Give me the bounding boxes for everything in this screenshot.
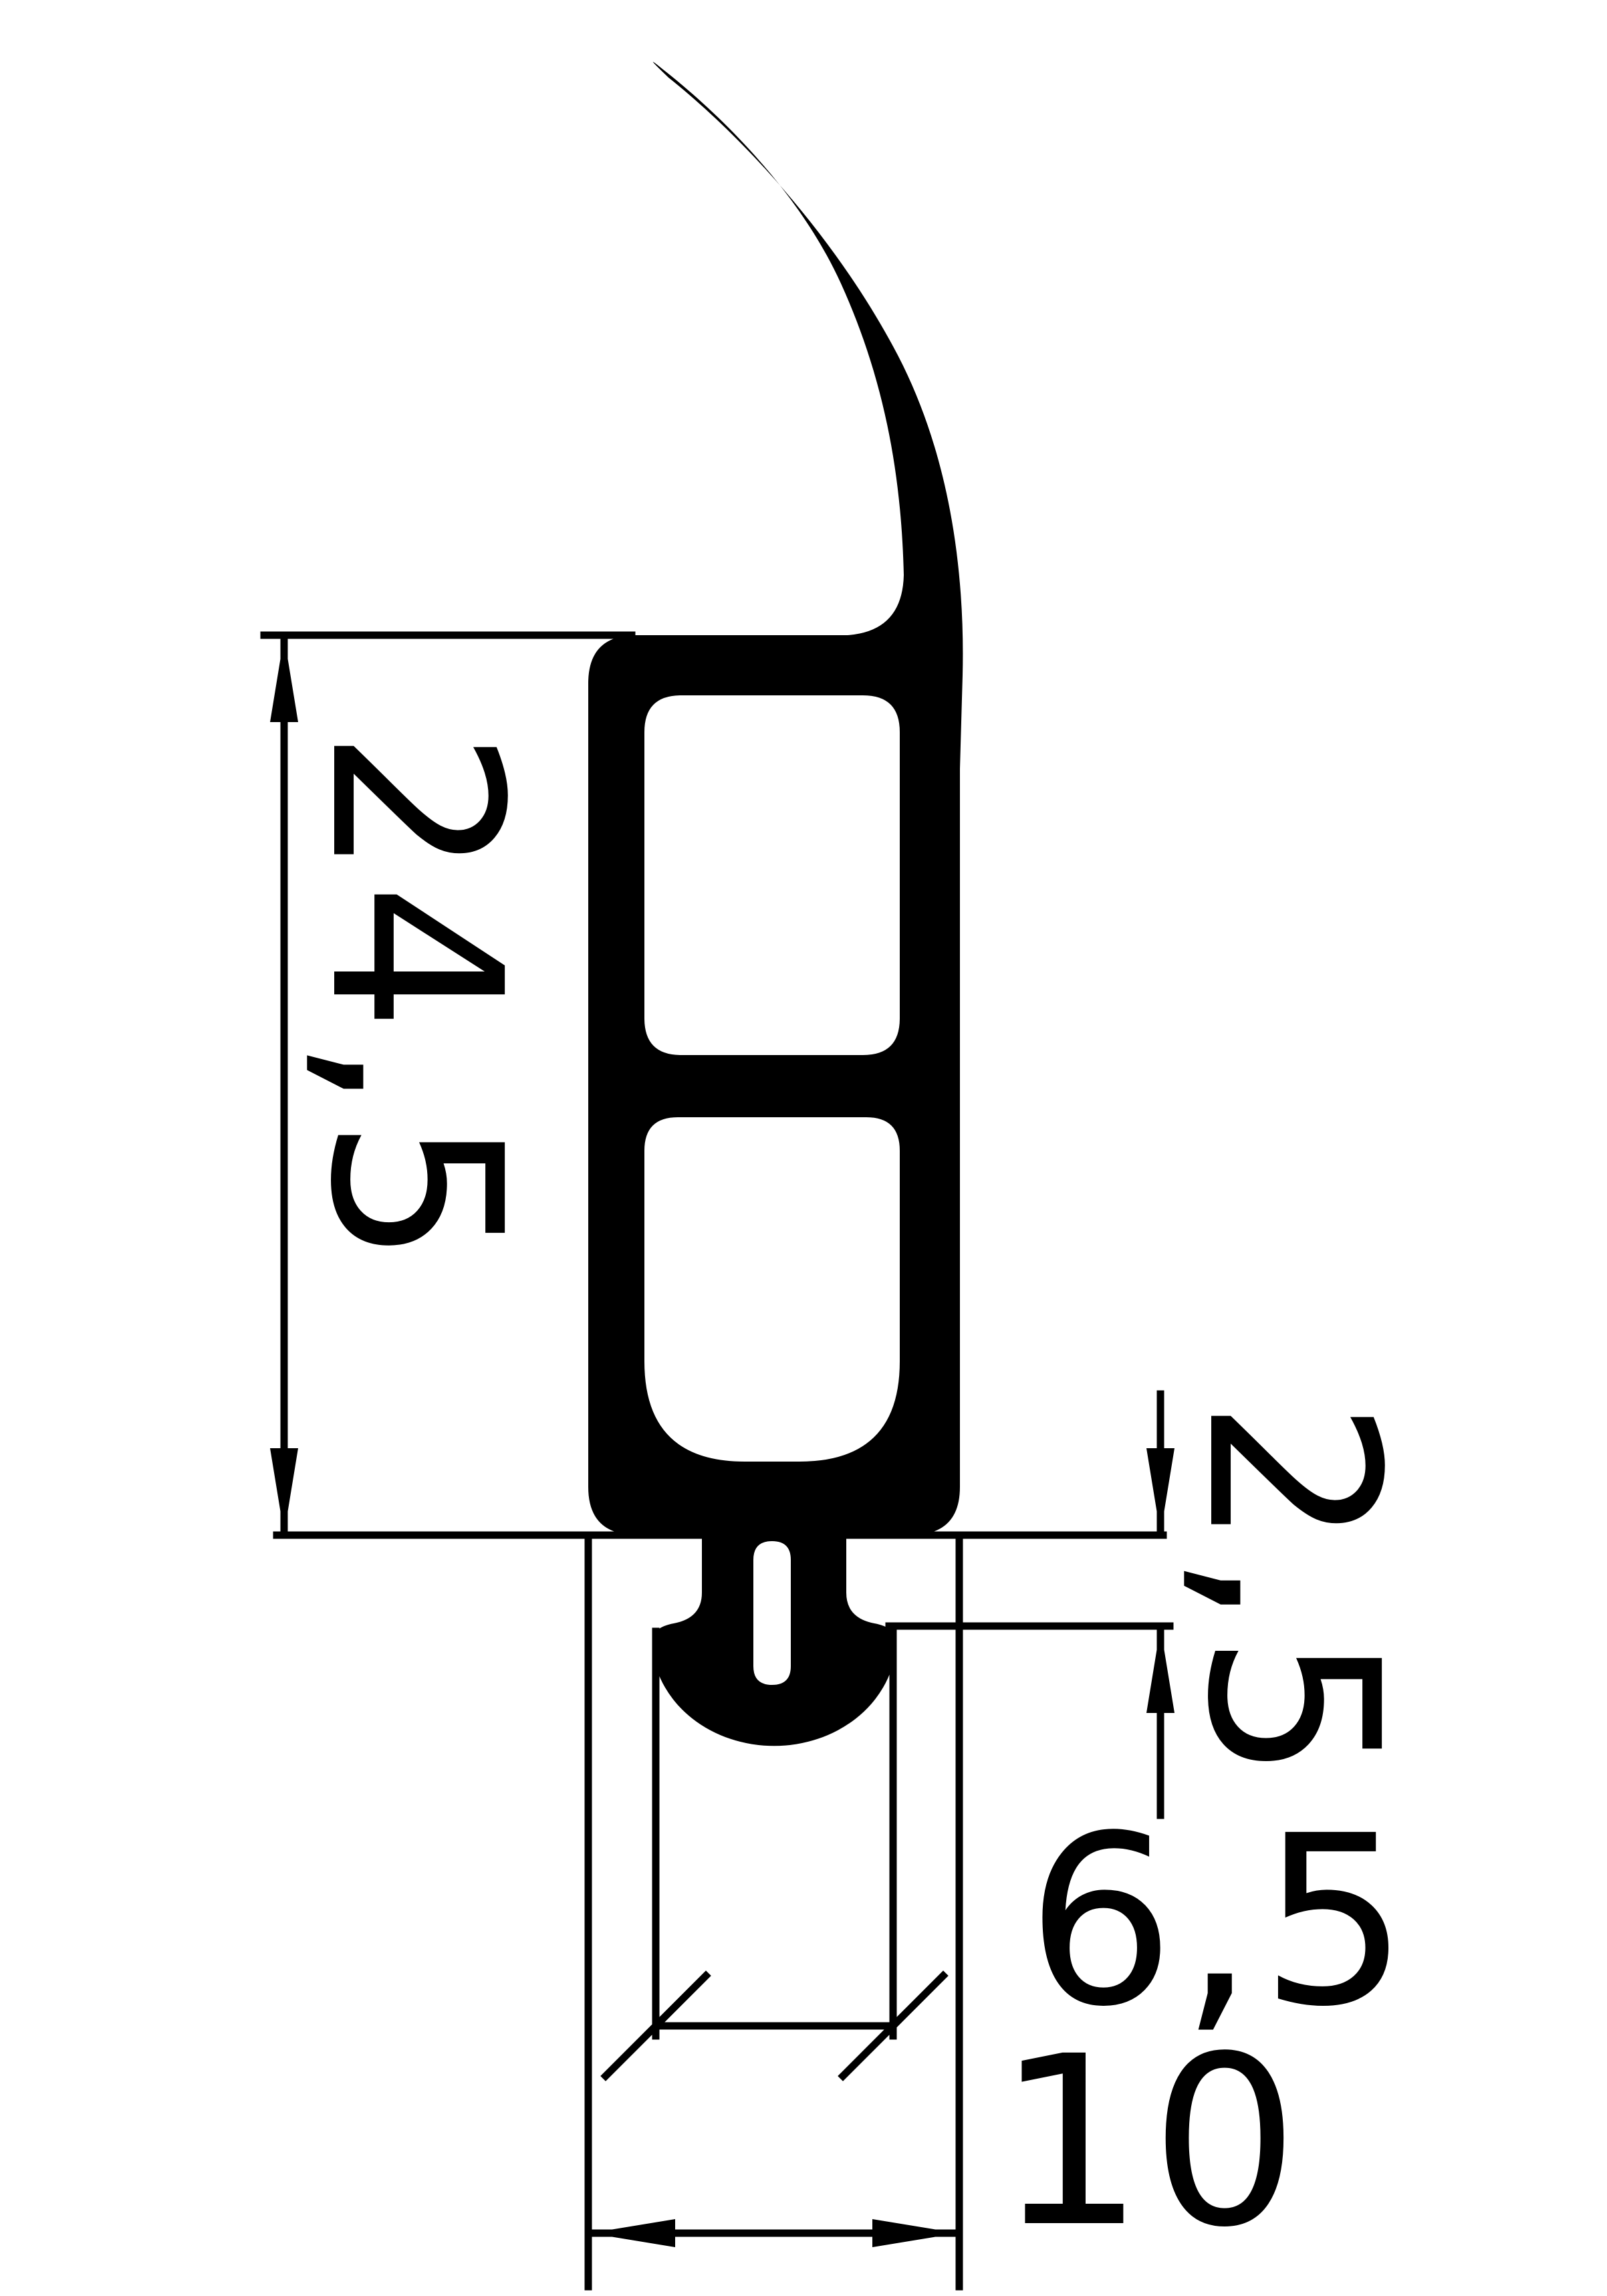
seal-profile-drawing-svg: 24,5 2,5 6,5 10: [0, 0, 1607, 2296]
dim-profile-height-label: 24,5: [279, 729, 551, 1271]
dim-foot-width-label: 10: [996, 2006, 1304, 2279]
profile-drawing-page: 24,5 2,5 6,5 10: [0, 0, 1607, 2296]
dim-neck-height-label: 2,5: [1156, 1399, 1429, 1787]
